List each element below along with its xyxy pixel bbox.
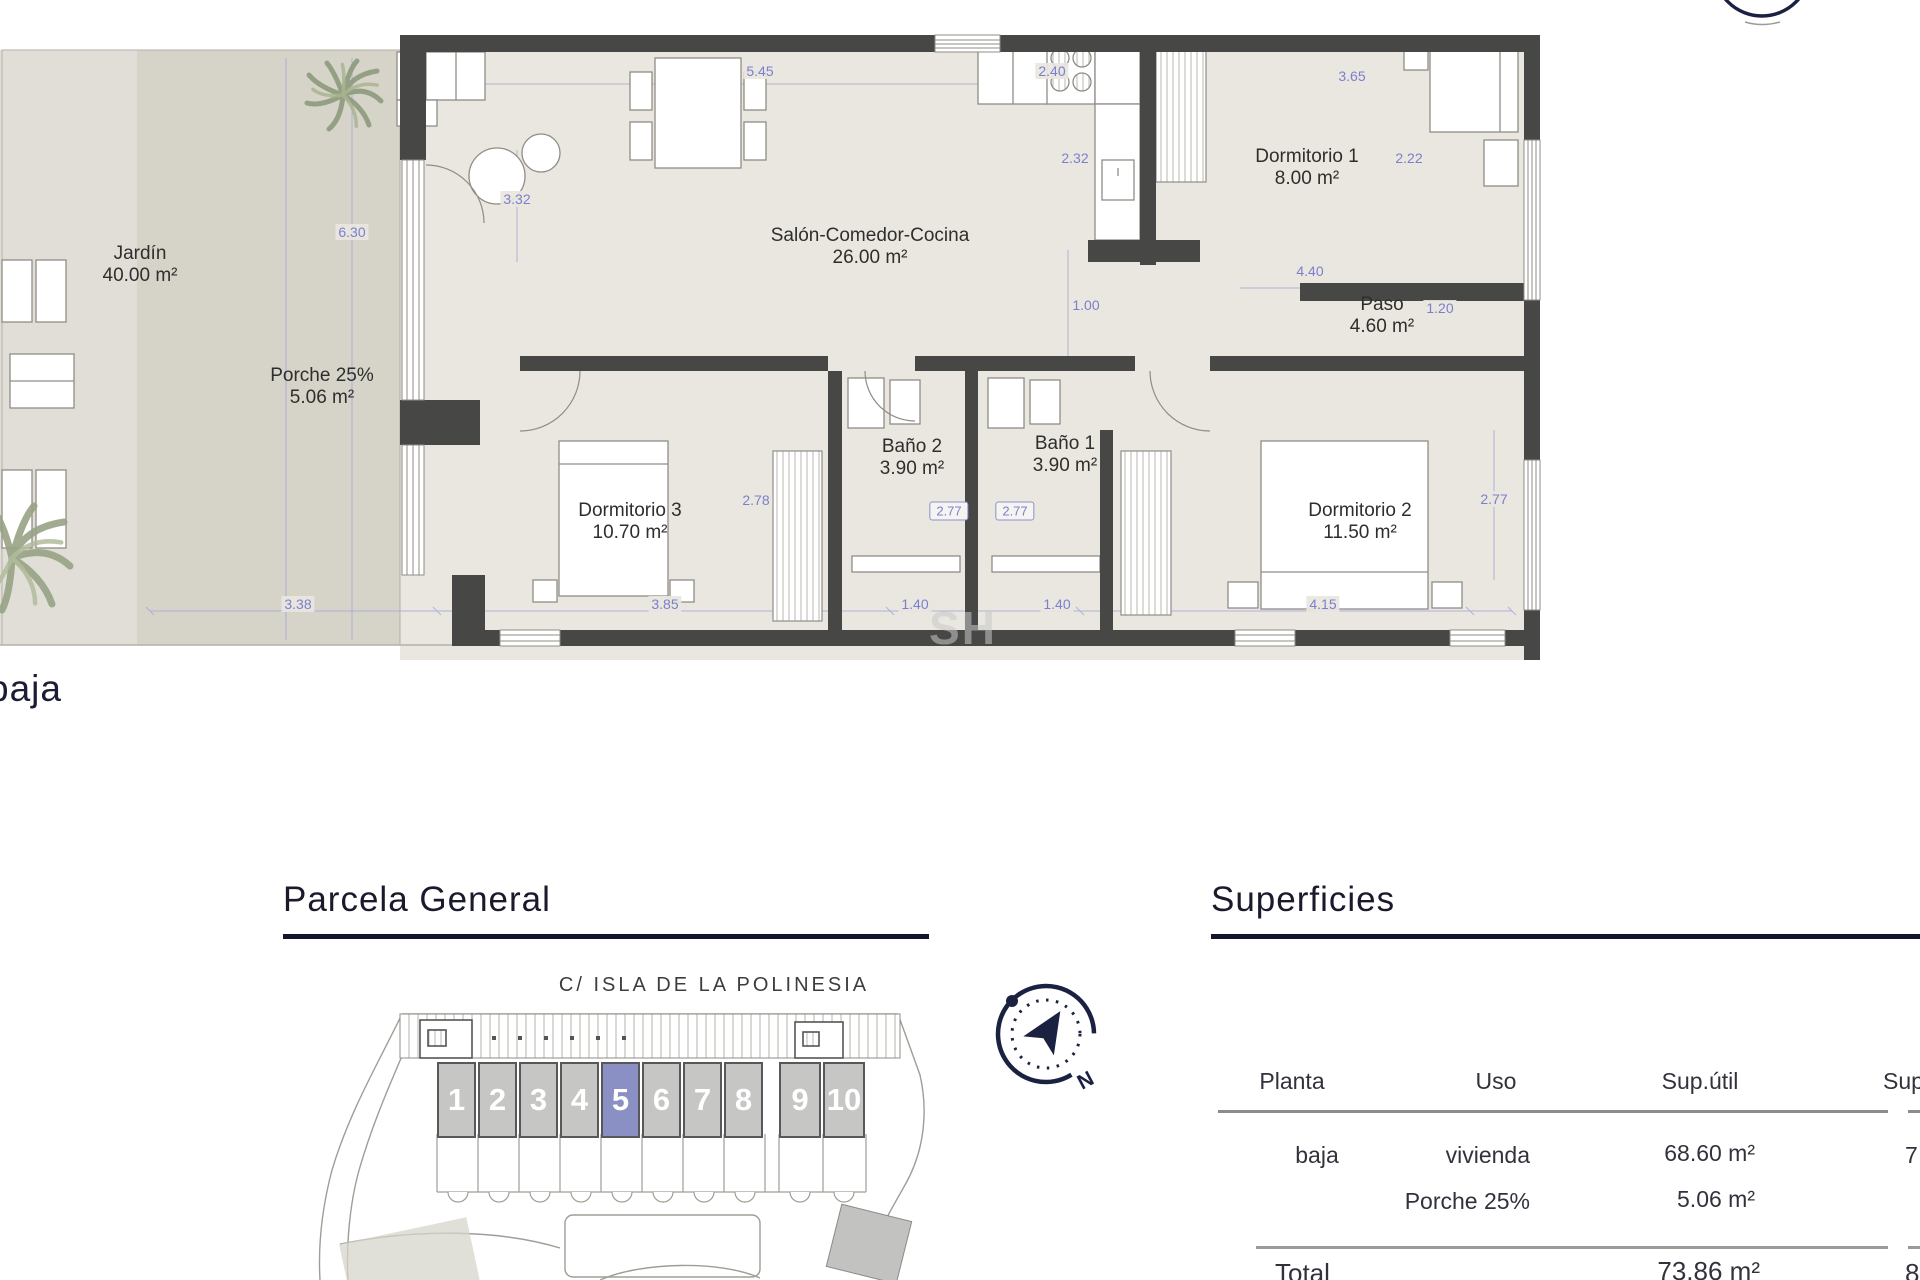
room-label-bano-1: Baño 13.90 m²: [1033, 433, 1097, 477]
site-unit-5: 5: [601, 1062, 640, 1138]
site-unit-4: 4: [560, 1062, 599, 1138]
room-label-porche: Porche 25%5.06 m²: [270, 365, 374, 409]
table-row-sup-util-1: 68.60 m²: [1605, 1140, 1755, 1167]
room-label-dormitorio-2: Dormitorio 211.50 m²: [1308, 500, 1411, 544]
dimension-10: 2.78: [739, 492, 772, 508]
table-header-rule-edge: [1908, 1110, 1920, 1113]
plan-document: N Jardín40.00 m²Porche 25%5.06 m²Salón-C…: [0, 0, 1920, 1280]
site-unit-1: 1: [437, 1062, 476, 1138]
table-header-rule: [1218, 1110, 1888, 1113]
parcela-title-rule: [283, 934, 929, 939]
site-unit-9: 9: [779, 1062, 821, 1138]
dimension-6: 3.65: [1335, 68, 1368, 84]
room-label-jardin: Jardín40.00 m²: [103, 243, 178, 287]
dimension-0: 6.30: [335, 224, 368, 240]
dimension-9: 1.20: [1423, 300, 1456, 316]
site-unit-7: 7: [683, 1062, 722, 1138]
dimension-4: 2.32: [1058, 150, 1091, 166]
site-unit-2: 2: [478, 1062, 517, 1138]
floor-level-label: baja: [0, 668, 62, 710]
superficies-title: Superficies: [1211, 880, 1395, 920]
table-row-uso-2: Porche 25%: [1380, 1188, 1530, 1215]
street-label: C/ ISLA DE LA POLINESIA: [559, 974, 869, 997]
compass-north-label: N: [1074, 1067, 1098, 1094]
dimension-3: 2.40: [1035, 63, 1068, 79]
table-header-sup-util: Sup.útil: [1662, 1068, 1739, 1095]
table-row-planta: baja: [1295, 1142, 1338, 1169]
site-unit-10: 10: [823, 1062, 865, 1138]
table-separator: [1256, 1246, 1888, 1249]
room-label-bano-2: Baño 23.90 m²: [880, 436, 944, 480]
table-header-planta: Planta: [1259, 1068, 1324, 1095]
site-unit-3: 3: [519, 1062, 558, 1138]
boxed-dimension-0: 2.77: [929, 502, 968, 521]
room-label-dormitorio-3: Dormitorio 310.70 m²: [578, 500, 681, 544]
room-label-dormitorio-1: Dormitorio 18.00 m²: [1255, 146, 1358, 190]
table-header-uso: Uso: [1476, 1068, 1517, 1095]
dimension-1: 3.32: [500, 191, 533, 207]
table-total-sup-util: 73.86 m²: [1605, 1256, 1760, 1280]
dimension-14: 1.40: [898, 596, 931, 612]
dimension-8: 4.40: [1293, 263, 1326, 279]
table-row-uso-1: vivienda: [1380, 1142, 1530, 1169]
table-header-sup-const: Sup: [1883, 1068, 1920, 1095]
room-label-salon: Salón-Comedor-Cocina26.00 m²: [771, 225, 970, 269]
dimension-12: 3.38: [281, 596, 314, 612]
site-unit-8: 8: [724, 1062, 763, 1138]
parcela-general-title: Parcela General: [283, 880, 551, 920]
room-label-paso: Paso4.60 m²: [1350, 294, 1414, 338]
floor-plan-drawing: [0, 35, 1540, 660]
dimension-13: 3.85: [648, 596, 681, 612]
dimension-7: 2.22: [1392, 150, 1425, 166]
partial-compass-arc-icon: [1714, 0, 1810, 25]
watermark: SH: [929, 601, 997, 655]
dimension-16: 4.15: [1306, 596, 1339, 612]
site-unit-6: 6: [642, 1062, 681, 1138]
site-plan-drawing: [320, 1014, 925, 1280]
superficies-title-rule: [1211, 934, 1920, 939]
table-total-sup-const: 8: [1905, 1258, 1919, 1280]
dimension-5: 1.00: [1069, 297, 1102, 313]
table-separator-edge: [1908, 1246, 1920, 1249]
compass-icon: N: [980, 968, 1112, 1100]
table-row-sup-const-1: 7: [1905, 1142, 1918, 1169]
dimension-15: 1.40: [1040, 596, 1073, 612]
dimension-11: 2.77: [1477, 491, 1510, 507]
table-total-label: Total: [1275, 1258, 1330, 1280]
dimension-2: 5.45: [743, 63, 776, 79]
table-row-sup-util-2: 5.06 m²: [1605, 1186, 1755, 1213]
boxed-dimension-1: 2.77: [995, 502, 1034, 521]
